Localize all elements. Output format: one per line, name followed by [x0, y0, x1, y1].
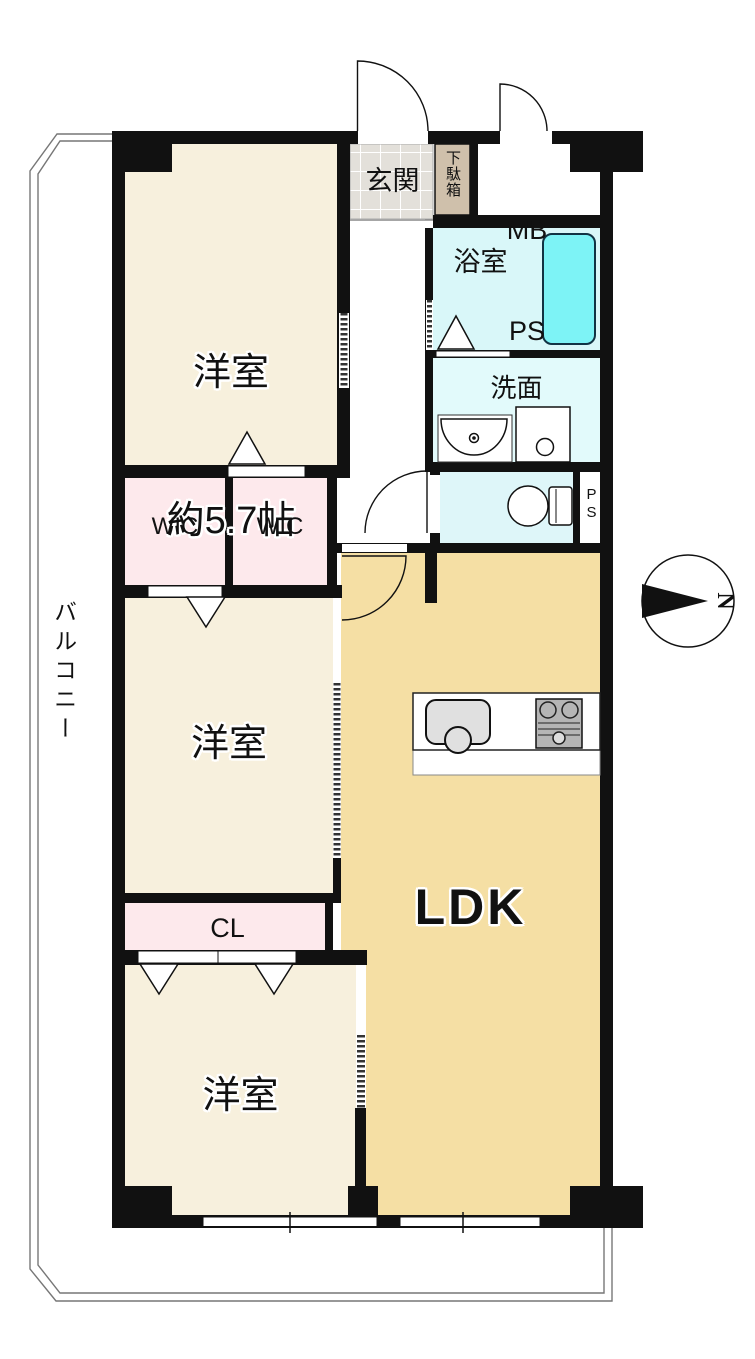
pillar-bottom-left [112, 1186, 172, 1228]
compass-north-label: N [711, 587, 739, 615]
bathroom-label: 浴室 [433, 246, 528, 278]
pillar-bottom-right [570, 1186, 643, 1228]
ldk-area [367, 950, 600, 965]
toilet-icon [508, 486, 572, 526]
washing-machine-icon [516, 407, 570, 462]
hallway-area [350, 219, 425, 543]
entrance-label: 玄関 [352, 165, 433, 197]
closet-label: CL [130, 912, 325, 944]
stove-icon [536, 699, 582, 748]
pipe-space-label: PS [582, 486, 600, 522]
meter-box-door-arc [500, 84, 547, 131]
bedroom-bottom-label: 洋室 [125, 1074, 356, 1120]
washroom-label: 洗面 [433, 373, 600, 404]
hallway-area-lower [337, 478, 350, 543]
washbasin-icon [438, 415, 512, 462]
ldk-label: LDK [341, 877, 600, 937]
ldk-area [366, 965, 600, 1215]
wic-right-label: WIC [233, 513, 327, 542]
wic-left-label: WIC [125, 513, 225, 542]
meter-box-line1: MB [478, 214, 576, 248]
floor-plan-drawing [0, 0, 755, 1359]
kitchen-counter [413, 693, 600, 775]
bedroom-top-label: 洋室 約5.7帖 [125, 250, 337, 596]
bedroom-top-name: 洋室 [125, 349, 337, 398]
meter-box-line2: PS [478, 315, 576, 349]
balcony-label: バルコニー [49, 600, 77, 745]
entrance-door-arc [358, 61, 429, 131]
floor-plan: 洋室 約5.7帖 洋室 洋室 LDK 玄関 下駄箱 MB PS 浴室 洗面 PS… [0, 0, 755, 1359]
bedroom-middle-label: 洋室 [125, 722, 333, 768]
window [400, 1217, 540, 1227]
shoe-cabinet-label: 下駄箱 [443, 150, 461, 198]
